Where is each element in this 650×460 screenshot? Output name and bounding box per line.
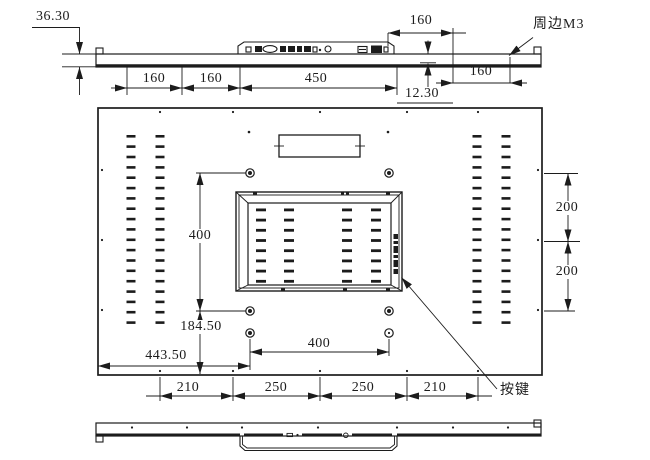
vent-slot (156, 280, 165, 283)
vent-slot (127, 280, 136, 283)
vent-slot (473, 249, 482, 252)
dim-top-seg3: 450 (299, 72, 333, 86)
vent-slot (502, 145, 511, 148)
vent-slot (127, 197, 136, 200)
vent-slot (502, 135, 511, 138)
vent-slot (127, 218, 136, 221)
vent-slot (284, 229, 294, 232)
vent-slot (156, 197, 165, 200)
vent-slot (473, 218, 482, 221)
vent-slot (502, 228, 511, 231)
vent-slot (284, 280, 294, 283)
vent-slot (473, 290, 482, 293)
vent-slot (473, 280, 482, 283)
vent-slot (284, 239, 294, 242)
dim-right-offset: 160 (464, 65, 498, 79)
vent-slot (473, 207, 482, 210)
vent-slot (502, 176, 511, 179)
vent-slot (256, 209, 266, 212)
vent-slot (156, 249, 165, 252)
vent-slot (127, 166, 136, 169)
vent-slot (127, 187, 136, 190)
vent-slot (156, 218, 165, 221)
vent-slot (342, 249, 352, 252)
vent-slot (156, 270, 165, 273)
drawing-canvas: 36.30 160 160 450 160 160 12.30 周边M3 400… (0, 0, 650, 460)
vent-slot (371, 260, 381, 263)
vent-slot (502, 311, 511, 314)
vent-slot (127, 135, 136, 138)
note-perimeter-m3: 周边M3 (533, 18, 584, 32)
vesa-hole (246, 169, 254, 177)
vent-slot (473, 187, 482, 190)
vent-slot (127, 270, 136, 273)
vent-slot (371, 249, 381, 252)
note-buttons: 按键 (500, 384, 530, 398)
dim-thickness: 36.30 (28, 10, 78, 24)
button-key (394, 241, 399, 244)
vent-slot (473, 311, 482, 314)
vent-slot (502, 321, 511, 324)
vent-slot (473, 166, 482, 169)
vent-slot (256, 229, 266, 232)
vent-slot (502, 156, 511, 159)
vent-slot (342, 270, 352, 273)
vent-slot (127, 311, 136, 314)
dim-chain-210b: 210 (418, 381, 452, 395)
vent-slot (473, 259, 482, 262)
vent-slot (502, 301, 511, 304)
dim-upper-offset: 160 (404, 14, 438, 28)
vent-slot (502, 239, 511, 242)
vent-slot (284, 219, 294, 222)
vent-slot (127, 145, 136, 148)
vent-slot (371, 229, 381, 232)
vent-slot (156, 207, 165, 210)
dim-edge-gap: 12.30 (397, 87, 447, 101)
bottom-view-profile (96, 420, 541, 451)
vent-slot (156, 145, 165, 148)
vent-slot (256, 239, 266, 242)
vent-slot (502, 187, 511, 190)
mount-hole (246, 329, 254, 337)
vent-slot (156, 156, 165, 159)
vent-slot (502, 218, 511, 221)
vent-slot (342, 219, 352, 222)
dim-bottom-hole-offset: 184.50 (174, 320, 228, 334)
vent-slot (127, 301, 136, 304)
vent-slot (342, 280, 352, 283)
left-end-tab (96, 436, 103, 442)
vent-slot (371, 219, 381, 222)
vent-slot (371, 270, 381, 273)
vesa-hole (385, 169, 393, 177)
vesa-hole (385, 307, 393, 315)
vent-slot (502, 207, 511, 210)
vent-slot (473, 176, 482, 179)
vent-slot (156, 187, 165, 190)
vent-slot (284, 270, 294, 273)
dim-vesa-vertical: 400 (185, 229, 215, 243)
vent-slot (342, 239, 352, 242)
vent-slot (156, 259, 165, 262)
button-key (394, 246, 399, 253)
vent-slot (371, 209, 381, 212)
vent-slot (342, 209, 352, 212)
left-end-tab (96, 48, 103, 54)
vent-slot (502, 166, 511, 169)
vent-slot (156, 228, 165, 231)
vent-slot (502, 259, 511, 262)
vent-slot (127, 321, 136, 324)
vent-slot (473, 321, 482, 324)
vent-slot (156, 311, 165, 314)
button-key (394, 260, 399, 267)
vent-slot (156, 301, 165, 304)
vent-slot (473, 197, 482, 200)
button-key (394, 255, 399, 258)
vent-slot (256, 249, 266, 252)
right-end-tab (534, 47, 541, 54)
vent-slot (502, 280, 511, 283)
dim-chain-210a: 210 (171, 381, 205, 395)
vent-slot (256, 270, 266, 273)
vent-slot (127, 176, 136, 179)
vent-slot (473, 135, 482, 138)
vent-slot (256, 219, 266, 222)
vent-slot (473, 145, 482, 148)
vent-slot (502, 197, 511, 200)
dim-right-200-top: 200 (551, 201, 583, 215)
dim-chain-250a: 250 (259, 381, 293, 395)
vent-slot (127, 156, 136, 159)
dim-right-200-bottom: 200 (551, 265, 583, 279)
vent-slot (371, 239, 381, 242)
vent-slot (127, 207, 136, 210)
dim-top-seg1: 160 (137, 72, 171, 86)
vent-slot (156, 290, 165, 293)
vent-slot (502, 290, 511, 293)
vent-slot (342, 260, 352, 263)
vent-slot (156, 321, 165, 324)
vent-slot (256, 260, 266, 263)
vent-slot (473, 239, 482, 242)
vent-slot (473, 156, 482, 159)
vent-slot (473, 228, 482, 231)
vent-slot (156, 135, 165, 138)
vent-slot (156, 166, 165, 169)
vent-slot (256, 280, 266, 283)
vent-slot (127, 290, 136, 293)
vent-slot (473, 301, 482, 304)
dim-vesa-horizontal: 400 (305, 337, 333, 351)
vent-slot (502, 270, 511, 273)
vent-slot (502, 249, 511, 252)
vent-slot (127, 249, 136, 252)
vent-slot (156, 176, 165, 179)
dim-left-hole-offset: 443.50 (140, 349, 192, 363)
vent-slot (284, 260, 294, 263)
vent-slot (284, 209, 294, 212)
vent-slot (127, 259, 136, 262)
button-key (394, 269, 399, 274)
vent-slot (371, 280, 381, 283)
vent-slot (473, 270, 482, 273)
drawing-linework (0, 0, 650, 460)
vent-slot (342, 229, 352, 232)
vesa-hole (246, 307, 254, 315)
vent-slot (156, 239, 165, 242)
vent-slot (284, 249, 294, 252)
button-key (394, 234, 399, 239)
vent-slot (127, 228, 136, 231)
vent-slot (127, 239, 136, 242)
mount-hole (385, 329, 393, 337)
dim-top-seg2: 160 (194, 72, 228, 86)
dim-chain-250b: 250 (346, 381, 380, 395)
